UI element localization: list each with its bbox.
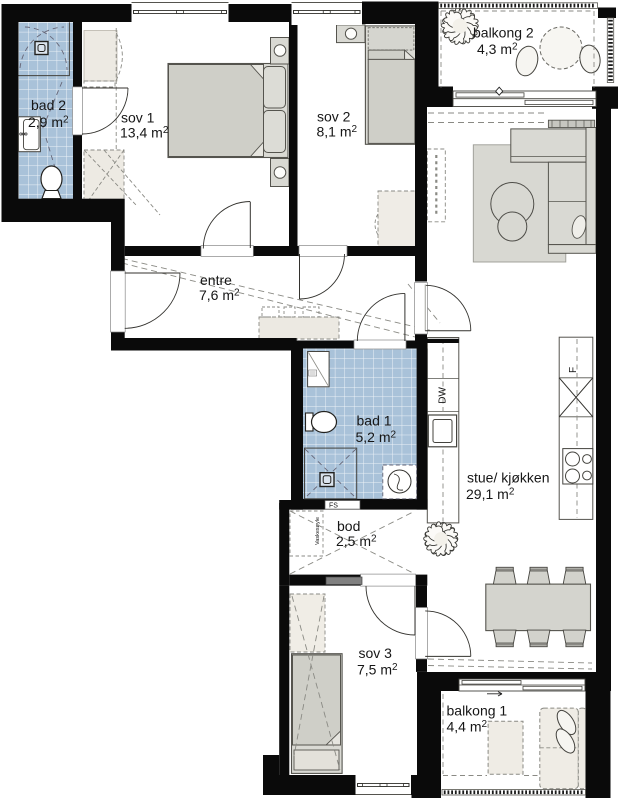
svg-text:4,3 m2: 4,3 m2 bbox=[477, 41, 518, 57]
svg-text:4,4 m2: 4,4 m2 bbox=[447, 719, 488, 735]
svg-text:balkong 2: balkong 2 bbox=[473, 25, 534, 41]
svg-text:balkong 1: balkong 1 bbox=[447, 703, 508, 719]
svg-text:Vaskesøyle: Vaskesøyle bbox=[315, 517, 321, 545]
svg-text:DW: DW bbox=[438, 386, 449, 403]
svg-text:sov 3: sov 3 bbox=[359, 645, 393, 661]
svg-text:FS: FS bbox=[329, 503, 338, 510]
svg-text:sov 1: sov 1 bbox=[121, 110, 155, 126]
svg-text:7,6 m2: 7,6 m2 bbox=[199, 287, 240, 303]
svg-text:entre: entre bbox=[200, 272, 232, 288]
svg-text:5,2 m2: 5,2 m2 bbox=[356, 429, 397, 445]
svg-text:29,1 m2: 29,1 m2 bbox=[466, 486, 515, 502]
svg-text:sov 2: sov 2 bbox=[317, 109, 351, 125]
svg-text:stue/ kjøkken: stue/ kjøkken bbox=[467, 470, 549, 486]
svg-text:8,1 m2: 8,1 m2 bbox=[317, 124, 358, 140]
svg-text:13,4 m2: 13,4 m2 bbox=[120, 125, 169, 141]
svg-text:bod: bod bbox=[337, 518, 360, 534]
svg-text:bad 1: bad 1 bbox=[357, 413, 392, 429]
svg-text:7,5 m2: 7,5 m2 bbox=[357, 662, 398, 678]
svg-text:2,5 m2: 2,5 m2 bbox=[336, 533, 377, 549]
svg-text:bad 2: bad 2 bbox=[31, 97, 66, 113]
svg-text:F: F bbox=[568, 367, 579, 373]
svg-text:2,9 m2: 2,9 m2 bbox=[28, 114, 69, 130]
